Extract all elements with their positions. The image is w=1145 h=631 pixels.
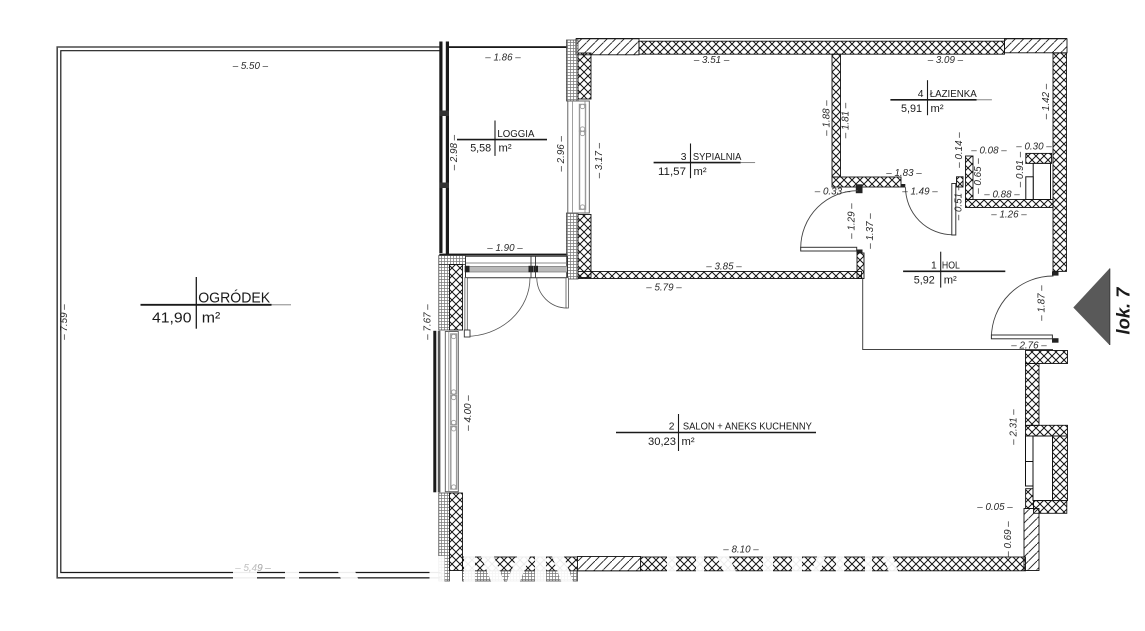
svg-text:– 0.88 –: – 0.88 – xyxy=(983,190,1020,201)
svg-text:– 1.29 –: – 1.29 – xyxy=(847,203,858,240)
svg-text:m²: m² xyxy=(499,143,512,155)
svg-text:m²: m² xyxy=(694,166,707,178)
svg-text:– 1.37 –: – 1.37 – xyxy=(865,213,876,250)
svg-text:m²: m² xyxy=(944,275,957,287)
svg-text:– 3.51 –: – 3.51 – xyxy=(693,55,730,66)
svg-text:41,90: 41,90 xyxy=(152,310,192,327)
svg-text:– 0.08 –: – 0.08 – xyxy=(970,146,1007,157)
svg-text:– 1.83 –: – 1.83 – xyxy=(885,168,922,179)
svg-text:ŁAZIENKA: ŁAZIENKA xyxy=(930,89,977,100)
svg-text:– 0.30 –: – 0.30 – xyxy=(1015,142,1052,153)
svg-text:– 1.26 –: – 1.26 – xyxy=(990,210,1027,221)
svg-text:– 0.69 –: – 0.69 – xyxy=(1003,521,1014,558)
svg-text:2: 2 xyxy=(669,422,675,433)
svg-text:5,91: 5,91 xyxy=(901,103,922,115)
svg-text:– 0.65 –: – 0.65 – xyxy=(973,158,984,195)
svg-text:LOGGIA: LOGGIA xyxy=(497,129,534,140)
svg-text:3: 3 xyxy=(681,152,687,163)
svg-text:– 5.50 –: – 5.50 – xyxy=(232,61,269,72)
svg-text:– 0.05 –: – 0.05 – xyxy=(976,502,1013,513)
svg-text:m²: m² xyxy=(682,436,695,448)
svg-text:1: 1 xyxy=(931,260,937,271)
svg-text:– 2.98 –: – 2.98 – xyxy=(449,134,460,171)
svg-text:– 1.87 –: – 1.87 – xyxy=(1037,285,1048,322)
svg-text:– 7.59 –: – 7.59 – xyxy=(59,304,70,341)
svg-text:– 3.09 –: – 3.09 – xyxy=(927,55,964,66)
svg-text:– 1.42 –: – 1.42 – xyxy=(1041,83,1052,120)
svg-text:m²: m² xyxy=(202,310,221,327)
svg-text:– 4.00 –: – 4.00 – xyxy=(463,395,474,432)
svg-text:– 3.17 –: – 3.17 – xyxy=(594,142,605,179)
svg-text:– 2.96 –: – 2.96 – xyxy=(556,136,567,173)
svg-text:– 1.88 –: – 1.88 – xyxy=(822,100,833,137)
svg-text:SALON + ANEKS KUCHENNY: SALON + ANEKS KUCHENNY xyxy=(683,422,812,433)
svg-text:OGRÓDEK: OGRÓDEK xyxy=(198,289,270,306)
svg-text:– 3.85 –: – 3.85 – xyxy=(705,262,742,273)
svg-text:4: 4 xyxy=(918,89,924,100)
svg-text:m²: m² xyxy=(931,103,944,115)
svg-text:– 5.79 –: – 5.79 – xyxy=(645,283,682,294)
svg-text:5,92: 5,92 xyxy=(914,275,935,287)
svg-text:– 1.90 –: – 1.90 – xyxy=(486,243,523,254)
svg-text:lok. 7: lok. 7 xyxy=(1114,287,1134,335)
svg-text:– 5,49 –: – 5,49 – xyxy=(234,563,271,574)
svg-text:11,57: 11,57 xyxy=(658,166,686,178)
svg-text:– 1.81 –: – 1.81 – xyxy=(841,102,852,139)
svg-text:– 2.31 –: – 2.31 – xyxy=(1009,409,1020,446)
svg-text:SYPIALNIA: SYPIALNIA xyxy=(693,152,742,163)
svg-text:– 1.49 –: – 1.49 – xyxy=(901,187,938,198)
svg-text:– 0.14 –: – 0.14 – xyxy=(954,132,965,169)
svg-text:– 7.67 –: – 7.67 – xyxy=(423,304,434,341)
svg-text:– 0.33 –: – 0.33 – xyxy=(814,187,851,198)
svg-text:– 2.76 –: – 2.76 – xyxy=(1010,341,1047,352)
svg-text:– 0.91 –: – 0.91 – xyxy=(1015,151,1026,188)
svg-text:5,58: 5,58 xyxy=(470,143,491,155)
svg-text:– 0.51 –: – 0.51 – xyxy=(954,184,965,221)
svg-text:– 1.86 –: – 1.86 – xyxy=(484,53,521,64)
svg-text:30,23: 30,23 xyxy=(648,436,676,448)
svg-text:HOL: HOL xyxy=(942,260,960,271)
